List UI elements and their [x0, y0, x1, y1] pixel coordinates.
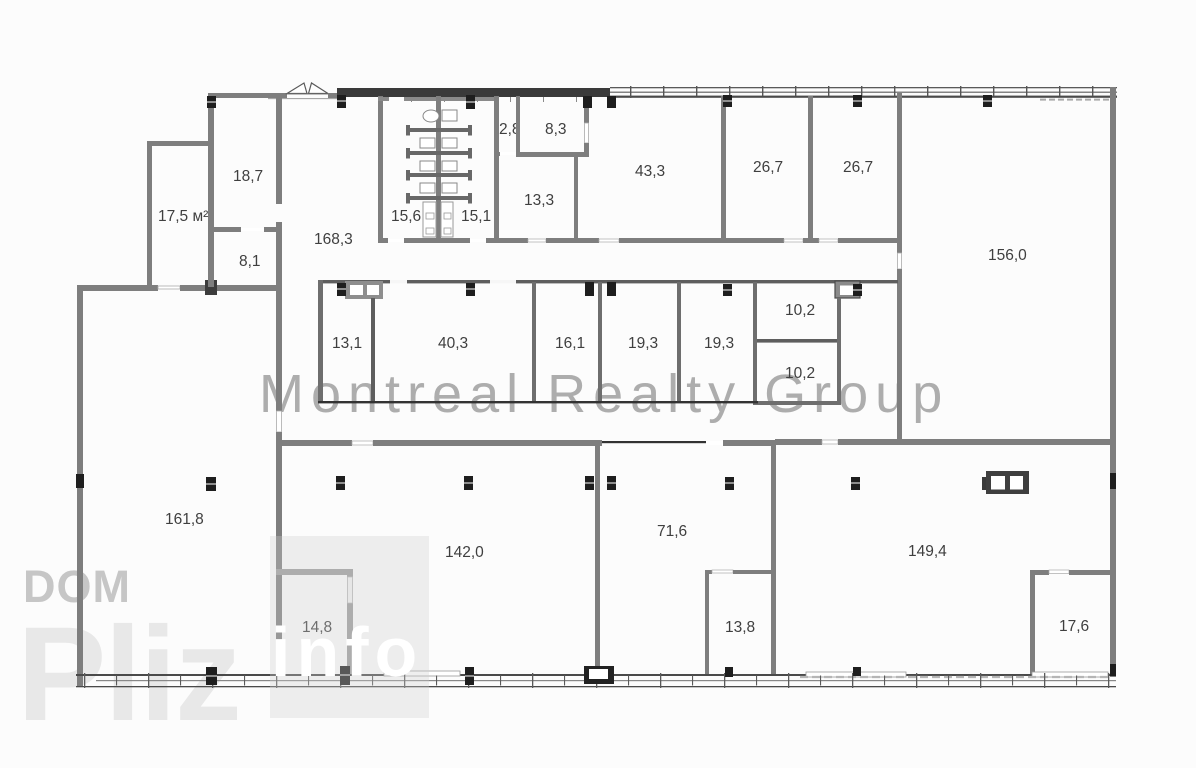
svg-text:161,8: 161,8: [165, 511, 204, 528]
svg-text:40,3: 40,3: [438, 335, 468, 352]
svg-text:168,3: 168,3: [314, 231, 353, 248]
svg-text:43,3: 43,3: [635, 163, 665, 180]
svg-text:8,3: 8,3: [545, 121, 567, 138]
svg-text:71,6: 71,6: [657, 523, 687, 540]
svg-text:8,1: 8,1: [239, 253, 261, 270]
svg-text:156,0: 156,0: [988, 247, 1027, 264]
svg-text:15,6: 15,6: [391, 208, 421, 225]
svg-text:13,3: 13,3: [524, 192, 554, 209]
svg-text:Montreal Realty Group: Montreal Realty Group: [259, 364, 949, 424]
svg-text:142,0: 142,0: [445, 544, 484, 561]
svg-text:17,6: 17,6: [1059, 618, 1089, 635]
svg-text:18,7: 18,7: [233, 168, 263, 185]
svg-text:15,1: 15,1: [461, 208, 491, 225]
svg-text:17,5 м²: 17,5 м²: [158, 208, 208, 225]
svg-text:info: info: [271, 613, 423, 691]
svg-text:26,7: 26,7: [753, 159, 783, 176]
svg-text:13,8: 13,8: [725, 619, 755, 636]
svg-text:19,3: 19,3: [704, 335, 734, 352]
svg-text:26,7: 26,7: [843, 159, 873, 176]
svg-text:10,2: 10,2: [785, 365, 815, 382]
svg-text:16,1: 16,1: [555, 335, 585, 352]
svg-text:19,3: 19,3: [628, 335, 658, 352]
svg-text:10,2: 10,2: [785, 302, 815, 319]
svg-text:13,1: 13,1: [332, 335, 362, 352]
svg-text:149,4: 149,4: [908, 543, 947, 560]
